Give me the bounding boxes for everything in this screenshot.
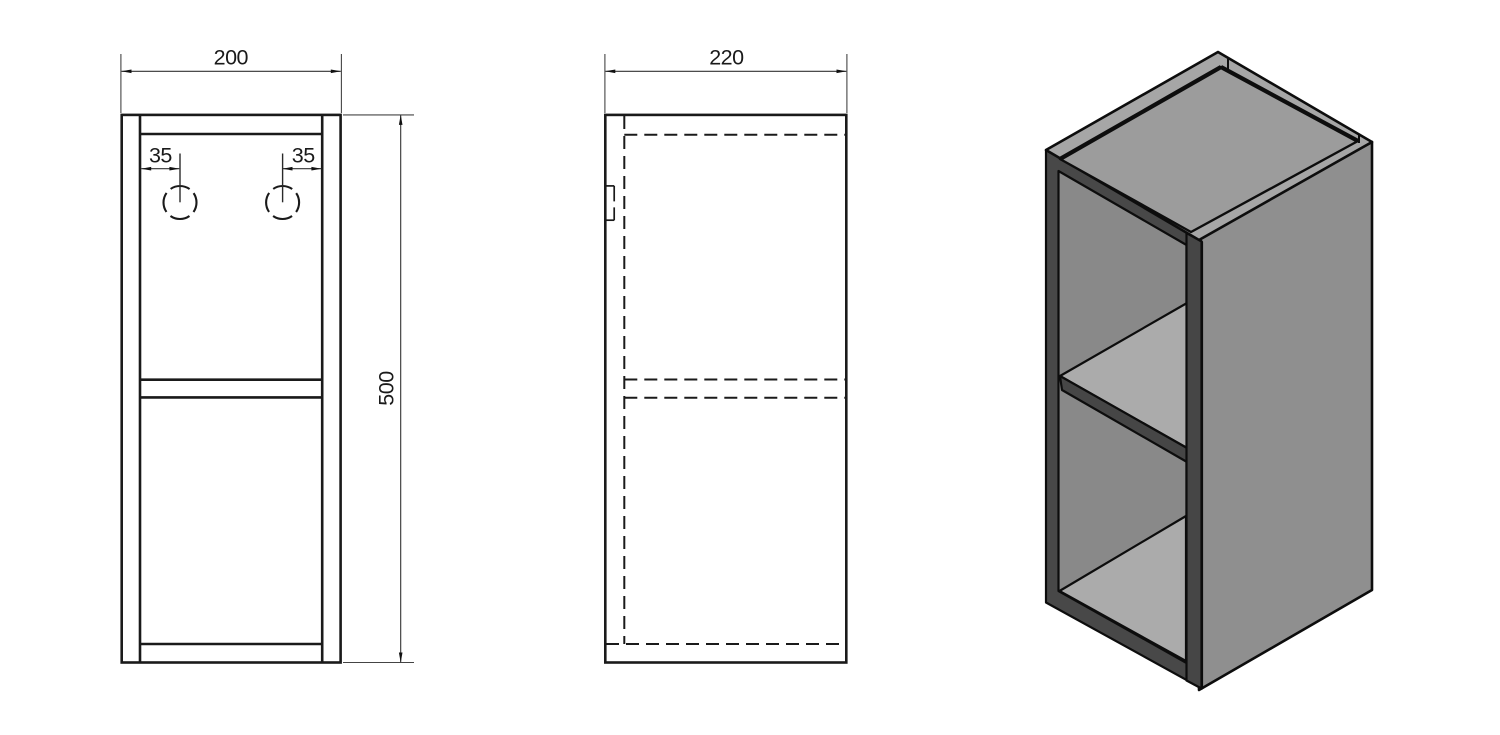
svg-text:35: 35 xyxy=(292,144,315,168)
svg-text:220: 220 xyxy=(709,46,744,70)
svg-text:500: 500 xyxy=(374,371,398,406)
svg-text:35: 35 xyxy=(149,144,172,168)
svg-text:200: 200 xyxy=(214,46,249,70)
